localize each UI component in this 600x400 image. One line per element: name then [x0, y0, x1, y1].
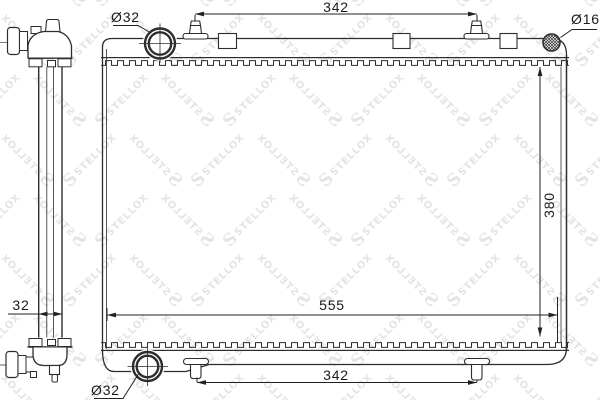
side-core: [39, 67, 62, 338]
dim-label-overall-width: 555: [312, 298, 352, 312]
dim-label-cap-diameter: Ø16: [571, 12, 600, 26]
dim-label-bottom-width: 342: [316, 368, 356, 382]
dim-label-side-depth: 32: [8, 298, 34, 312]
front-view: [101, 21, 569, 386]
core-bottom-strip: [101, 342, 569, 351]
side-view: [0, 20, 73, 383]
dim-label-top-port-diameter: Ø32: [111, 10, 140, 24]
technical-drawing: SSTELLOXSSTELLOXSSTELLOXSSTELLOXSSTELLOX…: [0, 0, 600, 400]
dim-label-top-width: 342: [316, 0, 356, 14]
dim-label-bottom-port-diameter: Ø32: [91, 383, 120, 397]
dimension-lines: [8, 12, 597, 399]
leader-top-port: [113, 26, 151, 34]
front-outline: [103, 39, 567, 372]
side-top-tank: [8, 20, 73, 67]
core-top-strip: [101, 57, 569, 66]
side-bottom-tank: [6, 339, 73, 383]
drawing-linework: [0, 0, 600, 400]
dim-label-core-height: 380: [542, 183, 556, 227]
leader-cap: [561, 30, 598, 38]
bottom-outlet-port: [128, 347, 169, 386]
radiator-cap: [543, 34, 561, 52]
